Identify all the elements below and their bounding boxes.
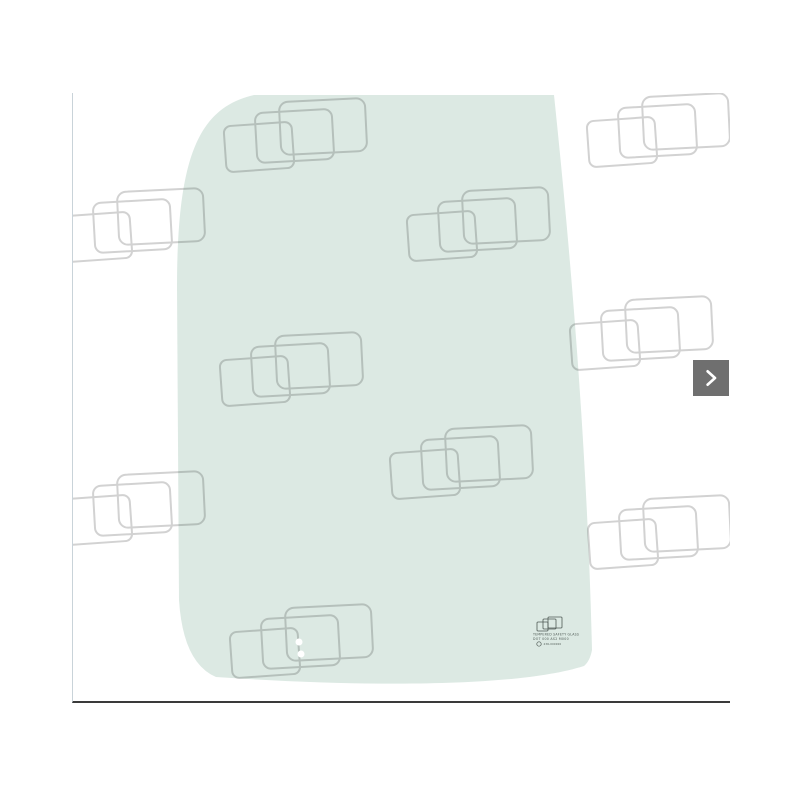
stamp-text-line2: DOT 000 AS2 M000 <box>533 637 569 641</box>
mounting-hole <box>296 639 303 646</box>
mounting-hole <box>298 651 305 658</box>
stamp-text-line1: TEMPERED SAFETY GLASS <box>532 633 579 637</box>
watermark-tile <box>586 93 730 167</box>
watermark-tile <box>569 296 713 370</box>
glass-panel-shape <box>177 95 592 684</box>
watermark-tile <box>587 495 730 569</box>
product-image: TEMPERED SAFETY GLASS DOT 000 AS2 M000 4… <box>73 93 730 701</box>
chevron-right-icon <box>699 366 723 390</box>
stamp-text-line3: 43R-000000 <box>544 642 562 646</box>
next-image-button[interactable] <box>693 360 729 396</box>
product-image-viewer: TEMPERED SAFETY GLASS DOT 000 AS2 M000 4… <box>72 93 730 703</box>
